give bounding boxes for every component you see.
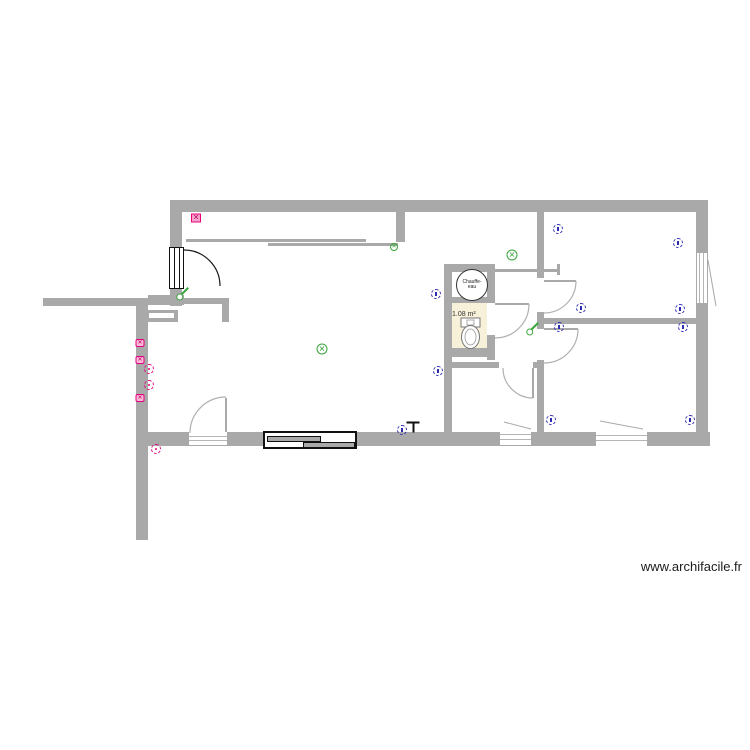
window-right-diagonal <box>708 260 716 306</box>
outlet-blue-icon[interactable] <box>678 322 688 332</box>
door-hall-arc[interactable] <box>503 368 533 398</box>
outlet-blue-icon[interactable] <box>673 238 683 248</box>
toilet-symbol[interactable] <box>461 318 480 349</box>
water-heater-label: Chauffe-eau <box>460 280 484 290</box>
socket-grid-pink-icon[interactable] <box>191 214 201 223</box>
entry-door-arc[interactable] <box>184 250 220 286</box>
outlet-pink-icon[interactable] <box>136 394 145 402</box>
outlet-pink-icon[interactable] <box>136 356 145 364</box>
floor-plan: Chauffe-eau 1.08 m² <box>0 0 750 750</box>
outlet-blue-icon[interactable] <box>685 415 695 425</box>
window-b-diagonal <box>600 421 643 429</box>
door-room2-arc[interactable] <box>544 329 578 363</box>
outlet-blue-icon[interactable] <box>675 304 685 314</box>
outlet-pink-dashed-icon[interactable] <box>151 444 161 454</box>
fixture-black-icon[interactable] <box>407 422 420 433</box>
wc-area-label: 1.08 m² <box>452 311 492 318</box>
window-a-diagonal <box>504 422 531 429</box>
outlet-blue-icon[interactable] <box>553 224 563 234</box>
light-green-icon[interactable] <box>317 344 328 355</box>
wc-door-arc[interactable] <box>495 304 529 338</box>
outlet-blue-icon[interactable] <box>576 303 586 313</box>
outlet-pink-dashed-icon[interactable] <box>144 364 154 374</box>
plan-overlay <box>0 0 750 750</box>
light-green-icon[interactable] <box>507 250 518 261</box>
outlet-blue-icon[interactable] <box>433 366 443 376</box>
outlet-blue-icon[interactable] <box>431 289 441 299</box>
watermark: www.archifacile.fr <box>641 559 742 574</box>
outlet-blue-icon[interactable] <box>554 322 564 332</box>
water-heater[interactable]: Chauffe-eau <box>456 269 488 301</box>
outlet-pink-icon[interactable] <box>136 339 145 347</box>
light-green-small-icon[interactable] <box>390 243 398 251</box>
door-room1-arc[interactable] <box>544 281 576 313</box>
outlet-blue-icon[interactable] <box>546 415 556 425</box>
door-bottom-arc[interactable] <box>190 397 226 433</box>
outlet-blue-icon[interactable] <box>397 425 407 435</box>
outlet-pink-dashed-icon[interactable] <box>144 380 154 390</box>
